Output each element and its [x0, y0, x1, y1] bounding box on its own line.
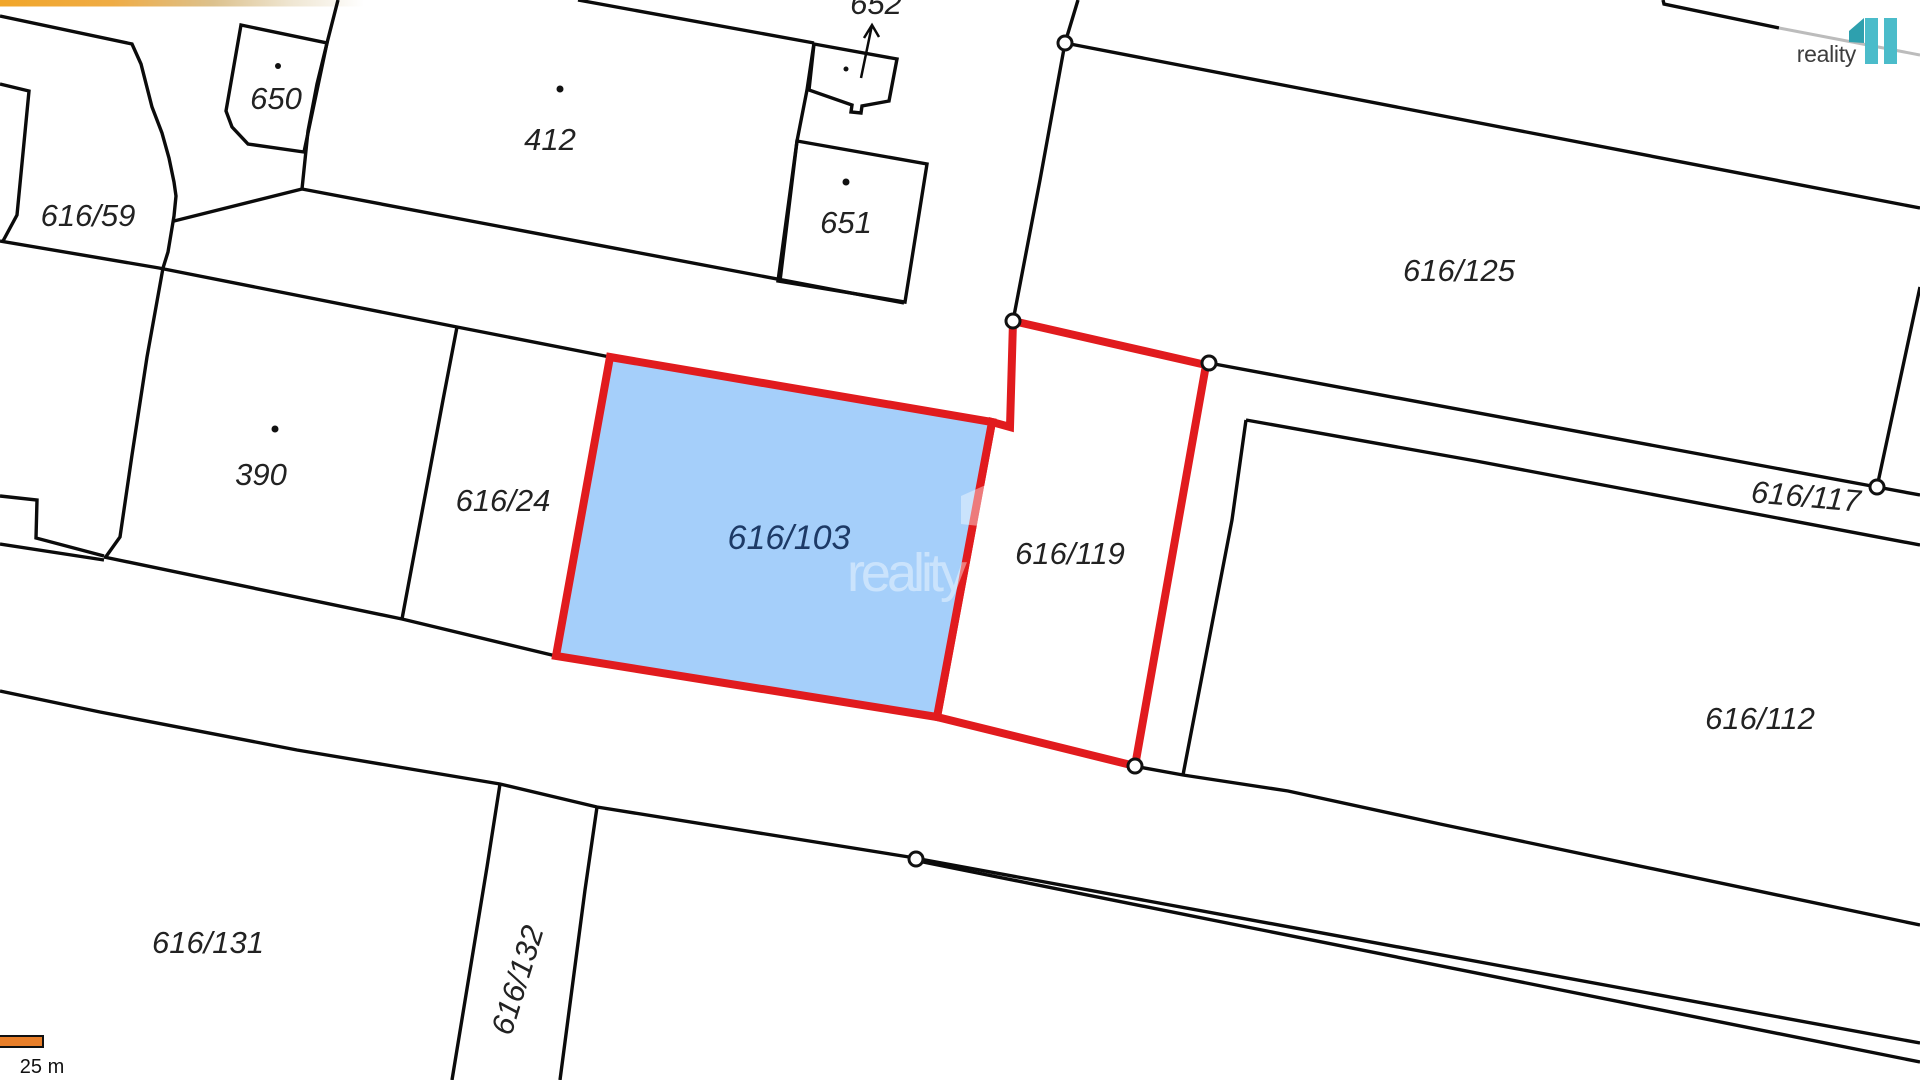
svg-text:reality: reality: [847, 543, 967, 603]
svg-text:616/131: 616/131: [152, 925, 264, 960]
svg-text:616/125: 616/125: [1403, 253, 1516, 288]
svg-text:651: 651: [820, 205, 872, 240]
svg-text:25 m: 25 m: [20, 1056, 64, 1078]
svg-text:390: 390: [235, 457, 287, 492]
svg-text:652: 652: [850, 0, 902, 21]
svg-text:650: 650: [250, 81, 302, 116]
svg-text:reality: reality: [1797, 41, 1857, 67]
svg-text:616/103: 616/103: [728, 519, 851, 557]
svg-text:616/24: 616/24: [456, 483, 551, 518]
svg-text:616/119: 616/119: [1015, 536, 1125, 571]
svg-text:616/112: 616/112: [1705, 701, 1815, 736]
svg-text:412: 412: [524, 122, 576, 157]
svg-text:616/59: 616/59: [41, 198, 136, 233]
